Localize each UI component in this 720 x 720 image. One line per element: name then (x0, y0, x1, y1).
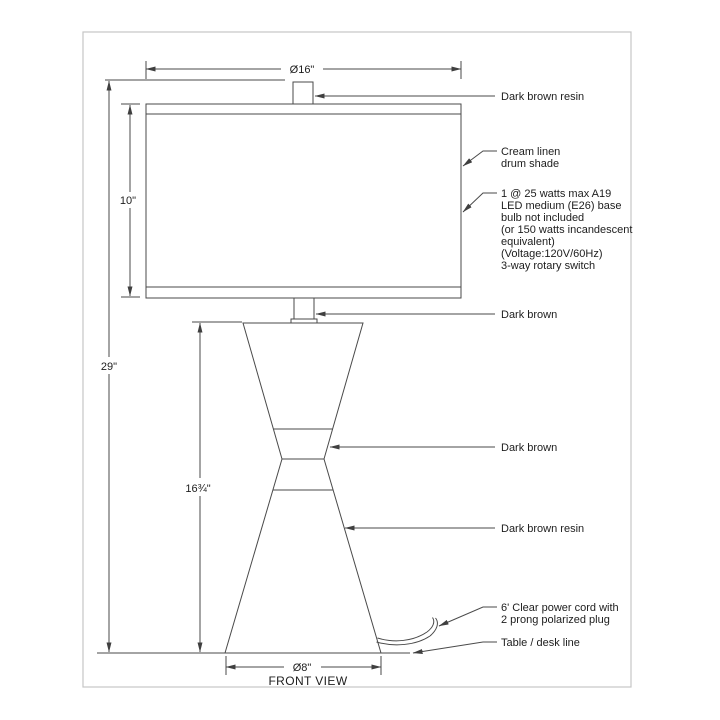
lamp-front-view-drawing: Ø16" 29" 10" 16¾" (0, 0, 720, 720)
leader-bulb (463, 193, 497, 212)
annotation-bulb-line7: 3-way rotary switch (501, 260, 595, 272)
lower-cone-body (225, 459, 381, 653)
power-cord-plug-hook-top (427, 618, 434, 633)
leader-cord (439, 607, 497, 626)
power-cord-line-top (378, 632, 428, 641)
annotation-bulb-line5: equivalent) (501, 236, 555, 248)
lamp-neck (294, 298, 314, 319)
leader-table (413, 642, 497, 653)
lamp-finial (293, 82, 313, 104)
annotation-bulb-line3: bulb not included (501, 212, 584, 224)
annotation-neck: Dark brown (501, 309, 557, 321)
annotation-bulb-line1: 1 @ 25 watts max A19 (501, 188, 611, 200)
annotation-bulb-line2: LED medium (E26) base (501, 200, 621, 212)
dim-base-diameter-label: Ø8" (293, 662, 312, 674)
dim-shade-diameter: Ø16" (146, 61, 461, 79)
dim-body-height-label: 16¾" (185, 483, 210, 495)
annotation-shade-line2: drum shade (501, 158, 559, 170)
dim-shade-height: 10" (115, 104, 142, 297)
leader-shade (463, 151, 497, 166)
dim-shade-diameter-label: Ø16" (290, 64, 315, 76)
annotation-table: Table / desk line (501, 637, 580, 649)
annotation-bulb-line6: (Voltage:120V/60Hz) (501, 248, 603, 260)
annotation-cord-line2: 2 prong polarized plug (501, 614, 610, 626)
lamp-outline (146, 82, 461, 653)
dim-base-diameter: Ø8" (226, 656, 381, 675)
annotation-lower-body: Dark brown resin (501, 523, 584, 535)
dim-shade-height-label: 10" (120, 195, 136, 207)
technical-drawing-page: Ø16" 29" 10" 16¾" (0, 0, 720, 720)
power-cord (377, 618, 438, 645)
annotation-bulb-line4: (or 150 watts incandescent (501, 224, 632, 236)
dim-overall-height-label: 29" (101, 361, 117, 373)
dim-body-height: 16¾" (183, 322, 242, 652)
upper-cone-body (243, 323, 363, 459)
drum-shade (146, 104, 461, 298)
neck-flange (291, 319, 317, 323)
view-label: FRONT VIEW (268, 674, 347, 688)
annotation-waist: Dark brown (501, 442, 557, 454)
annotation-shade-line1: Cream linen (501, 146, 560, 158)
annotation-cord-line1: 6' Clear power cord with (501, 602, 619, 614)
annotation-finial: Dark brown resin (501, 91, 584, 103)
